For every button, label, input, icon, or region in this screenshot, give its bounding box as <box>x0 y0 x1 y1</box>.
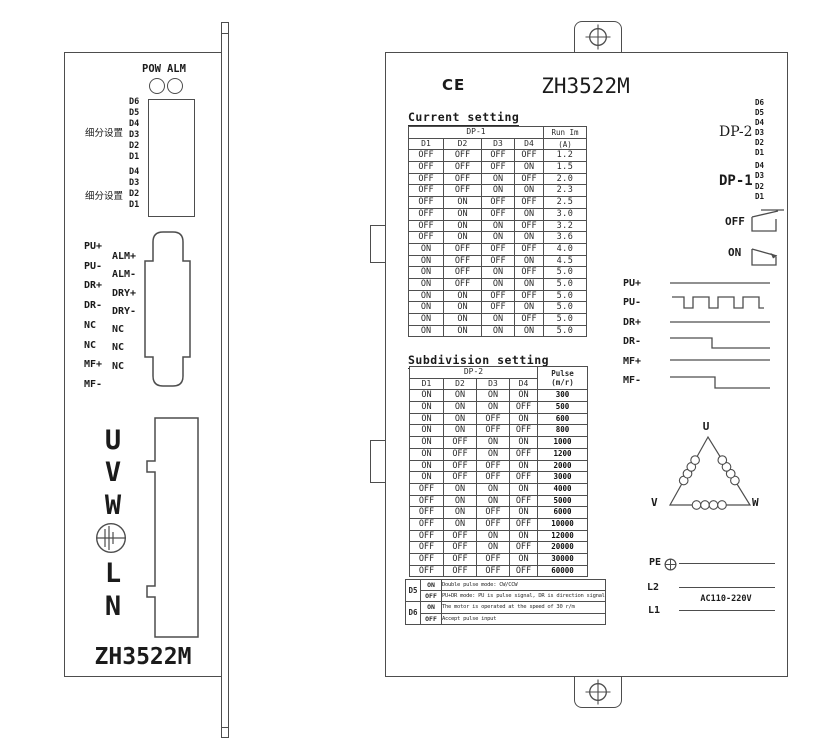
terminal-label-l: L <box>98 559 128 589</box>
switch-state-cell: OFF <box>410 518 444 530</box>
left-panel-model: ZH3522M <box>64 644 222 670</box>
table-row: OFFOFFOFFON1.5 <box>409 162 587 174</box>
switch-state-cell: ON <box>510 483 538 495</box>
value-cell: 2.5 <box>544 197 587 209</box>
note-state: OFF <box>421 613 442 624</box>
value-cell: 2000 <box>538 460 588 472</box>
table-row: ONOFFONOFF5.0 <box>409 267 587 279</box>
value-cell: 300 <box>538 390 588 402</box>
switch-state-cell: ON <box>410 472 444 484</box>
dp-group-header: DP-1 <box>409 127 544 139</box>
switch-state-cell: ON <box>515 325 544 337</box>
connector-right-pin-labels: ALM+ALM-DRY+DRY-NCNCNC <box>112 248 136 376</box>
bit-column-header: D2 <box>444 138 482 150</box>
switch-state-cell: ON <box>515 278 544 290</box>
pe-label: PE <box>649 557 661 568</box>
table-row: ONONONOFF5.0 <box>409 314 587 326</box>
value-cell: 600 <box>538 413 588 425</box>
switch-state-cell: OFF <box>482 162 515 174</box>
switch-state-cell: ON <box>482 220 515 232</box>
switch-state-cell: OFF <box>515 314 544 326</box>
ac-voltage-label: AC110-220V <box>697 594 755 604</box>
switch-state-cell: ON <box>444 425 477 437</box>
value-column-header: Run Im <box>544 127 587 139</box>
bit-column-header: D3 <box>482 138 515 150</box>
dip-bit-label: D5 <box>129 108 139 119</box>
switch-state-cell: OFF <box>477 507 510 519</box>
dp1-label: DP-1 <box>719 173 753 189</box>
subdivision-setting-table: DP-2Pulse(m/r)D1D2D3D4ONONONON300ONONONO… <box>409 366 588 577</box>
switch-state-cell: OFF <box>444 460 477 472</box>
switch-state-cell: OFF <box>444 437 477 449</box>
switch-state-cell: ON <box>444 314 482 326</box>
alm-led <box>167 78 183 94</box>
switch-state-cell: OFF <box>510 472 538 484</box>
switch-state-cell: OFF <box>477 554 510 566</box>
switch-state-cell: ON <box>477 402 510 414</box>
value-cell: 800 <box>538 425 588 437</box>
dp-bit-label: D2 <box>755 138 764 148</box>
switch-state-cell: ON <box>482 314 515 326</box>
signal-labels: PU+PU-DR+DR-MF+MF- <box>623 274 641 390</box>
switch-state-cell: OFF <box>477 413 510 425</box>
l1-wire <box>679 610 775 611</box>
switch-state-cell: ON <box>409 314 444 326</box>
table-row: ONOFFONOFF1200 <box>410 448 588 460</box>
switch-state-cell: OFF <box>410 530 444 542</box>
switch-on-label: ON <box>728 246 741 259</box>
switch-state-cell: ON <box>409 325 444 337</box>
value-cell: 1.2 <box>544 150 587 162</box>
signal-label: MF+ <box>623 352 641 371</box>
switch-state-cell: OFF <box>510 542 538 554</box>
table-row: OFFOFFOFFOFF60000 <box>410 565 588 577</box>
signal-label: MF- <box>623 371 641 390</box>
value-cell: 5000 <box>538 495 588 507</box>
switch-state-cell: ON <box>510 530 538 542</box>
switch-off-label: OFF <box>725 215 745 228</box>
switch-state-cell: OFF <box>444 554 477 566</box>
dp-bit-label: D3 <box>755 171 764 181</box>
switch-state-cell: ON <box>510 554 538 566</box>
switch-state-cell: ON <box>482 232 515 244</box>
signal-label: PU+ <box>623 274 641 293</box>
switch-state-cell: ON <box>477 542 510 554</box>
pin-label: MF+ <box>84 355 102 375</box>
subdivision-cn-label-2: 细分设置 <box>85 188 123 202</box>
switch-state-cell: OFF <box>477 472 510 484</box>
table-row: ONOFFOFFON4.5 <box>409 255 587 267</box>
switch-state-cell: ON <box>444 302 482 314</box>
pin-label: ALM+ <box>112 248 136 266</box>
switch-state-cell: OFF <box>410 554 444 566</box>
table-row: ONOFFOFFOFF3000 <box>410 472 588 484</box>
switch-state-cell: OFF <box>444 542 477 554</box>
switch-state-cell: ON <box>444 390 477 402</box>
motor-terminal-v: V <box>651 496 658 509</box>
table-row: OFFONONOFF5000 <box>410 495 588 507</box>
dip-bit-label: D1 <box>129 200 139 211</box>
dp-bit-label: D4 <box>755 118 764 128</box>
switch-state-cell: OFF <box>410 565 444 577</box>
note-state: ON <box>421 580 442 591</box>
switch-state-cell: ON <box>444 507 477 519</box>
switch-state-cell: ON <box>444 197 482 209</box>
table-row: OFFONOFFOFF2.5 <box>409 197 587 209</box>
table-row: OFFOFFONON12000 <box>410 530 588 542</box>
l2-label: L2 <box>647 582 659 593</box>
signal-waveforms <box>660 272 785 397</box>
value-cell: 1.5 <box>544 162 587 174</box>
switch-state-cell: ON <box>477 390 510 402</box>
value-cell: 2.3 <box>544 185 587 197</box>
terminal-label-u: U <box>98 426 128 456</box>
value-cell: 4.5 <box>544 255 587 267</box>
dp-bit-label: D2 <box>755 182 764 192</box>
value-cell: 6000 <box>538 507 588 519</box>
led-labels: POW ALM <box>142 63 186 75</box>
pin-label: NC <box>112 321 136 339</box>
dip-notes-table: D5ONDouble pulse mode: CW/CCWOFFPU+DR mo… <box>405 579 606 625</box>
signal-label: DR- <box>623 332 641 351</box>
switch-state-cell: OFF <box>515 267 544 279</box>
driver-datasheet-drawing: POW ALM D6D5D4D3D2D1 D4D3D2D1 细分设置 细分设置 … <box>0 0 840 755</box>
switch-state-cell: ON <box>409 302 444 314</box>
switch-state-cell: ON <box>477 483 510 495</box>
switch-state-cell: ON <box>444 483 477 495</box>
switch-state-cell: OFF <box>409 162 444 174</box>
pin-label: NC <box>112 339 136 357</box>
motor-terminal-u: U <box>698 420 714 433</box>
switch-state-cell: OFF <box>409 232 444 244</box>
power-terminal-block[interactable] <box>145 416 202 642</box>
table-row: ONOFFONON5.0 <box>409 278 587 290</box>
ce-mark: CE <box>442 76 465 94</box>
switch-state-cell: OFF <box>444 243 482 255</box>
switch-state-cell: OFF <box>409 150 444 162</box>
value-cell: 3.0 <box>544 208 587 220</box>
value-cell: 3.2 <box>544 220 587 232</box>
value-cell: 5.0 <box>544 267 587 279</box>
table-row: ONONOFFOFF5.0 <box>409 290 587 302</box>
switch-state-cell: OFF <box>482 243 515 255</box>
bit-column-header: D3 <box>477 378 510 390</box>
switch-state-cell: ON <box>444 495 477 507</box>
switch-state-cell: ON <box>444 208 482 220</box>
note-state: ON <box>421 602 442 613</box>
note-state: OFF <box>421 591 442 602</box>
value-cell: 10000 <box>538 518 588 530</box>
table-row: OFFONOFFOFF10000 <box>410 518 588 530</box>
pin-label: PU+ <box>84 237 102 257</box>
switch-state-cell: OFF <box>444 173 482 185</box>
switch-state-cell: ON <box>515 232 544 244</box>
table-row: OFFOFFOFFOFF1.2 <box>409 150 587 162</box>
bit-column-header: D4 <box>515 138 544 150</box>
value-cell: 1000 <box>538 437 588 449</box>
pin-label: ALM- <box>112 266 136 284</box>
switch-state-cell: OFF <box>410 483 444 495</box>
signal-label: DR+ <box>623 313 641 332</box>
switch-state-cell: ON <box>410 402 444 414</box>
bit-column-header: D1 <box>409 138 444 150</box>
value-cell: 1200 <box>538 448 588 460</box>
current-setting-title: Current setting <box>408 110 519 126</box>
note-row: OFFPU+DR mode: PU is pulse signal, DR is… <box>406 591 606 602</box>
pin-label: DRY- <box>112 303 136 321</box>
value-cell: 4.0 <box>544 243 587 255</box>
switch-state-cell: OFF <box>510 448 538 460</box>
pin-label: DRY+ <box>112 285 136 303</box>
mount-hole-bottom-icon <box>584 678 612 706</box>
switch-state-cell: OFF <box>410 507 444 519</box>
dip-bit-label: D6 <box>129 97 139 108</box>
switch-state-cell: ON <box>444 325 482 337</box>
switch-state-cell: ON <box>482 267 515 279</box>
switch-state-cell: ON <box>444 413 477 425</box>
switch-state-cell: OFF <box>515 150 544 162</box>
note-bit: D6 <box>406 602 421 624</box>
switch-state-cell: OFF <box>409 185 444 197</box>
switch-state-cell: OFF <box>515 220 544 232</box>
table-row: ONOFFOFFON2000 <box>410 460 588 472</box>
switch-state-cell: OFF <box>477 518 510 530</box>
switch-state-cell: OFF <box>409 220 444 232</box>
flange-tick-bottom <box>221 727 229 728</box>
pin-label: DR- <box>84 296 102 316</box>
switch-state-cell: ON <box>510 390 538 402</box>
value-cell: 5.0 <box>544 302 587 314</box>
switch-state-cell: OFF <box>515 243 544 255</box>
table-row: OFFOFFONOFF2.0 <box>409 173 587 185</box>
bit-column-header: D1 <box>410 378 444 390</box>
switch-state-cell: OFF <box>444 530 477 542</box>
switch-state-cell: ON <box>410 460 444 472</box>
switch-state-cell: OFF <box>444 267 482 279</box>
bit-column-header: D4 <box>510 378 538 390</box>
dp2-bit-labels: D6D5D4D3D2D1 <box>755 98 764 158</box>
value-cell: 2.0 <box>544 173 587 185</box>
value-cell: 500 <box>538 402 588 414</box>
right-panel-model: ZH3522M <box>518 74 653 98</box>
dip2-bit-labels: D4D3D2D1 <box>129 167 139 211</box>
pin-label: NC <box>112 358 136 376</box>
mount-hole-top-icon <box>584 23 612 51</box>
terminal-label-w: W <box>98 491 128 521</box>
switch-state-cell: ON <box>515 302 544 314</box>
table-row: OFFONOFFON3.0 <box>409 208 587 220</box>
value-cell: 20000 <box>538 542 588 554</box>
switch-state-cell: ON <box>410 448 444 460</box>
note-text: PU+DR mode: PU is pulse signal, DR is di… <box>442 591 606 602</box>
switch-state-cell: OFF <box>482 302 515 314</box>
note-text: Double pulse mode: CW/CCW <box>442 580 606 591</box>
switch-state-cell: ON <box>515 255 544 267</box>
switch-state-cell: ON <box>409 255 444 267</box>
switch-state-cell: OFF <box>515 197 544 209</box>
switch-state-cell: ON <box>444 232 482 244</box>
switch-state-cell: ON <box>410 425 444 437</box>
switch-state-cell: OFF <box>444 162 482 174</box>
table-row: ONOFFOFFOFF4.0 <box>409 243 587 255</box>
switch-state-cell: OFF <box>410 495 444 507</box>
left-panel-flange <box>221 22 229 738</box>
dip-bit-label: D4 <box>129 119 139 130</box>
dip1-bit-labels: D6D5D4D3D2D1 <box>129 97 139 162</box>
switch-state-cell: OFF <box>515 173 544 185</box>
dp-bit-label: D1 <box>755 148 764 158</box>
value-cell: 5.0 <box>544 278 587 290</box>
switch-state-cell: ON <box>482 278 515 290</box>
switch-state-cell: ON <box>510 460 538 472</box>
dip-bit-label: D2 <box>129 189 139 200</box>
switch-state-cell: OFF <box>482 197 515 209</box>
note-row: D6ONThe motor is operated at the speed o… <box>406 602 606 613</box>
dp-group-header: DP-2 <box>410 367 538 379</box>
value-cell: 5.0 <box>544 325 587 337</box>
switch-state-cell: OFF <box>515 290 544 302</box>
bit-column-header: D2 <box>444 378 477 390</box>
pin-label: DR+ <box>84 276 102 296</box>
switch-state-cell: OFF <box>477 565 510 577</box>
table-row: OFFONONOFF3.2 <box>409 220 587 232</box>
alm-label: ALM <box>167 63 186 75</box>
switch-state-cell: ON <box>477 448 510 460</box>
dp-bit-label: D5 <box>755 108 764 118</box>
signal-label: PU- <box>623 293 641 312</box>
switch-state-cell: OFF <box>510 402 538 414</box>
value-cell: 3.6 <box>544 232 587 244</box>
note-text: The motor is operated at the speed of 30… <box>442 602 606 613</box>
switch-state-cell: ON <box>444 518 477 530</box>
switch-state-cell: OFF <box>409 173 444 185</box>
switch-state-cell: ON <box>515 162 544 174</box>
switch-state-cell: ON <box>482 325 515 337</box>
pin-label: NC <box>84 316 102 336</box>
value-cell: 12000 <box>538 530 588 542</box>
switch-state-cell: ON <box>410 390 444 402</box>
earth-ground-icon <box>94 521 128 555</box>
switch-state-cell: OFF <box>444 255 482 267</box>
value-cell: 4000 <box>538 483 588 495</box>
current-setting-table: DP-1Run ImD1D2D3D4(A)OFFOFFOFFOFF1.2OFFO… <box>408 126 587 337</box>
switch-state-cell: OFF <box>444 185 482 197</box>
switch-state-cell: OFF <box>482 150 515 162</box>
dip-bit-label: D4 <box>129 167 139 178</box>
value-column-header: Pulse(m/r) <box>538 367 588 390</box>
note-row: D5ONDouble pulse mode: CW/CCW <box>406 580 606 591</box>
pe-ground-icon <box>663 557 678 572</box>
pin-label: NC <box>84 336 102 356</box>
subdivision-cn-label-1: 细分设置 <box>85 125 123 139</box>
value-cell: 60000 <box>538 565 588 577</box>
switch-state-cell: ON <box>444 220 482 232</box>
note-bit: D5 <box>406 580 421 602</box>
switch-state-cell: OFF <box>482 208 515 220</box>
switch-state-cell: ON <box>410 413 444 425</box>
dp-bit-label: D1 <box>755 192 764 202</box>
switch-state-cell: OFF <box>482 290 515 302</box>
value-cell: 5.0 <box>544 290 587 302</box>
dp-bit-label: D6 <box>755 98 764 108</box>
dp1-bit-labels: D4D3D2D1 <box>755 161 764 202</box>
dip-switch-block[interactable] <box>148 99 195 217</box>
switch-state-cell: ON <box>409 278 444 290</box>
switch-state-cell: OFF <box>477 460 510 472</box>
flange-tick-top <box>221 33 229 34</box>
dip-bit-label: D2 <box>129 141 139 152</box>
dp-bit-label: D3 <box>755 128 764 138</box>
note-row: OFFAccept pulse input <box>406 613 606 624</box>
switch-state-cell: ON <box>482 185 515 197</box>
pow-led <box>149 78 165 94</box>
table-row: OFFOFFOFFON30000 <box>410 554 588 566</box>
table-row: ONONOFFOFF800 <box>410 425 588 437</box>
switch-state-cell: ON <box>444 290 482 302</box>
table-row: OFFOFFONOFF20000 <box>410 542 588 554</box>
switch-state-cell: OFF <box>409 197 444 209</box>
switch-state-cell: ON <box>409 243 444 255</box>
table-row: ONONONON5.0 <box>409 325 587 337</box>
value-cell: 5.0 <box>544 314 587 326</box>
dip-bit-label: D3 <box>129 130 139 141</box>
switch-state-cell: OFF <box>444 472 477 484</box>
dp-bit-label: D4 <box>755 161 764 171</box>
switch-state-cell: ON <box>444 402 477 414</box>
dip-lever-off-icon <box>749 207 785 233</box>
pin-label: MF- <box>84 375 102 395</box>
table-row: OFFONONON3.6 <box>409 232 587 244</box>
dip-bit-label: D1 <box>129 152 139 163</box>
motor-terminal-w: W <box>752 496 759 509</box>
pow-label: POW <box>142 63 161 75</box>
note-text: Accept pulse input <box>442 613 606 624</box>
l1-label: L1 <box>648 605 660 616</box>
switch-state-cell: OFF <box>482 255 515 267</box>
switch-state-cell: ON <box>410 437 444 449</box>
value-unit-header: (A) <box>544 138 587 150</box>
switch-state-cell: ON <box>510 437 538 449</box>
dp2-label: DP-2 <box>719 124 753 140</box>
value-cell: 30000 <box>538 554 588 566</box>
terminal-label-n: N <box>98 592 128 622</box>
dip-lever-on-icon <box>749 241 785 267</box>
switch-state-cell: ON <box>510 507 538 519</box>
switch-state-cell: OFF <box>444 150 482 162</box>
switch-state-cell: OFF <box>410 542 444 554</box>
switch-state-cell: OFF <box>510 518 538 530</box>
switch-state-cell: OFF <box>444 565 477 577</box>
switch-state-cell: ON <box>477 495 510 507</box>
table-row: ONOFFONON1000 <box>410 437 588 449</box>
connector-left-pin-labels: PU+PU-DR+DR-NCNCMF+MF- <box>84 237 102 395</box>
switch-state-cell: ON <box>477 530 510 542</box>
switch-state-cell: OFF <box>510 425 538 437</box>
switch-state-cell: ON <box>515 208 544 220</box>
table-row: OFFOFFONON2.3 <box>409 185 587 197</box>
switch-state-cell: ON <box>482 173 515 185</box>
switch-state-cell: ON <box>409 267 444 279</box>
table-row: OFFONONON4000 <box>410 483 588 495</box>
switch-state-cell: OFF <box>444 278 482 290</box>
table-row: ONONONOFF500 <box>410 402 588 414</box>
table-row: ONONONON300 <box>410 390 588 402</box>
terminal-label-v: V <box>98 458 128 488</box>
switch-state-cell: ON <box>409 290 444 302</box>
table-row: OFFONOFFON6000 <box>410 507 588 519</box>
table-row: ONONOFFON600 <box>410 413 588 425</box>
switch-state-cell: ON <box>510 413 538 425</box>
